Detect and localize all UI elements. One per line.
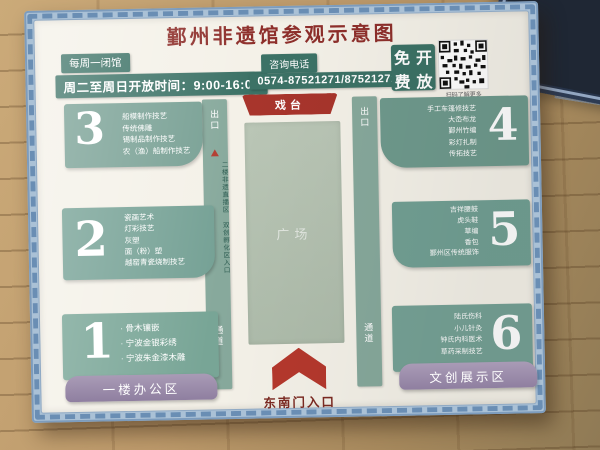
photo-scene: 鄞州非遗馆参观示意图 每周一闭馆 周二至周日开放时间：9:00-16:00 咨询… (0, 0, 600, 450)
left-exit-label: 出口 (208, 109, 221, 131)
strip-arrow-icon (211, 149, 219, 156)
right-corridor-strip: 出口 通道 (352, 96, 383, 386)
zone-item: 手工车篷修技艺 (427, 103, 476, 115)
zone-item: 虎头鞋 (429, 216, 478, 228)
zone-item: · 宁波金银彩绣 (120, 335, 185, 351)
zone-number: 1 (80, 317, 114, 366)
zone-item-list: 手工车篷修技艺 大岙布龙 鄞州竹编 彩灯扎制 传拓技艺 (427, 103, 477, 160)
phone-number-bar: 0574-87521271/87521272 (249, 71, 405, 90)
zone-number: 3 (74, 107, 105, 152)
note-line: 双创孵化区入口 (221, 222, 229, 275)
zone-item: 鄞州区传统服饰 (430, 249, 479, 261)
zone-item: 传拓技艺 (428, 148, 477, 160)
zone-item: 钟氏内科医术 (440, 334, 482, 346)
zone-item: 大岙布龙 (427, 114, 476, 126)
opening-hours-bar: 周二至周日开放时间：9:00-16:00 (55, 71, 268, 98)
zone-item-list: · 骨木镶嵌 · 宁波金银彩绣 · 宁波朱金漆木雕 (120, 320, 186, 366)
zone-item-list: 吉祥腰鼓 虎头鞋 草编 香包 鄞州区传统服饰 (429, 205, 479, 260)
zone-number: 2 (74, 215, 108, 264)
zone-item: · 骨木镶嵌 (120, 320, 185, 336)
qr-code (439, 40, 488, 89)
zone-item: 草编 (429, 227, 478, 239)
closed-day-tag: 每周一闭馆 (61, 53, 130, 73)
zone-item: 越窑青瓷烧制技艺 (125, 256, 185, 268)
zone-item: 彩灯扎制 (428, 137, 477, 149)
zone-item: 小儿针灸 (440, 323, 482, 335)
zone-item: 吉祥腰鼓 (429, 205, 478, 217)
qr-code-pattern (439, 40, 488, 89)
zone-2: 2 瓷画艺术 灯彩技艺 灰塑 面（粉）塑 越窑青瓷烧制技艺 (62, 205, 215, 280)
zone-item: 草药采制技艺 (441, 346, 483, 358)
plaza-label: 广场 (276, 223, 312, 243)
zone-number: 5 (488, 205, 521, 252)
free-char: 放 (416, 68, 432, 92)
zone-4: 4 手工车篷修技艺 大岙布龙 鄞州竹编 彩灯扎制 传拓技艺 (380, 95, 529, 168)
entrance-chevron-icon (272, 347, 327, 390)
free-char: 费 (394, 69, 410, 93)
zone-item: · 宁波朱金漆木雕 (121, 350, 186, 366)
creative-area-banner: 文创展示区 (399, 361, 537, 390)
zone-item-list: 船模制作技艺 传统佛雕 锡制品制作技艺 农（渔）船制作技艺 (122, 110, 190, 158)
zone-5: 5 吉祥腰鼓 虎头鞋 草编 香包 鄞州区传统服饰 (392, 199, 531, 268)
right-exit-label: 出口 (358, 106, 371, 128)
free-admission-badge: 免 开 费 放 (391, 44, 436, 91)
zone-number: 6 (490, 309, 523, 356)
stage-banner: 戏台 (242, 93, 338, 116)
zone-1: 1 · 骨木镶嵌 · 宁波金银彩绣 · 宁波朱金漆木雕 (62, 311, 219, 380)
zone-item: 农（渔）船制作技艺 (123, 145, 191, 158)
zone-3: 3 船模制作技艺 传统佛雕 锡制品制作技艺 农（渔）船制作技艺 (64, 102, 203, 169)
free-char: 免 (394, 45, 410, 69)
office-area-banner: 一楼办公区 (65, 373, 217, 402)
free-char: 开 (416, 44, 432, 68)
plaza-area: 广场 (244, 121, 344, 345)
sign-panel: 鄞州非遗馆参观示意图 每周一闭馆 周二至周日开放时间：9:00-16:00 咨询… (34, 11, 535, 412)
zone-item-list: 瓷画艺术 灯彩技艺 灰塑 面（粉）塑 越窑青瓷烧制技艺 (124, 211, 185, 268)
phone-tag: 咨询电话 (261, 53, 317, 73)
zone-item: 陆氏伤科 (440, 311, 482, 323)
heritage-map-sign: 鄞州非遗馆参观示意图 每周一闭馆 周二至周日开放时间：9:00-16:00 咨询… (24, 1, 546, 423)
zone-item-list: 陆氏伤科 小儿针灸 钟氏内科医术 草药采制技艺 (440, 311, 483, 358)
note-line: 二楼非遗直播区 (220, 161, 228, 214)
zone-item: 鄞州竹编 (427, 126, 476, 138)
entrance-label: 东南门入口 (241, 391, 357, 412)
zone-number: 4 (487, 104, 518, 149)
right-corridor-label: 通道 (362, 322, 375, 344)
